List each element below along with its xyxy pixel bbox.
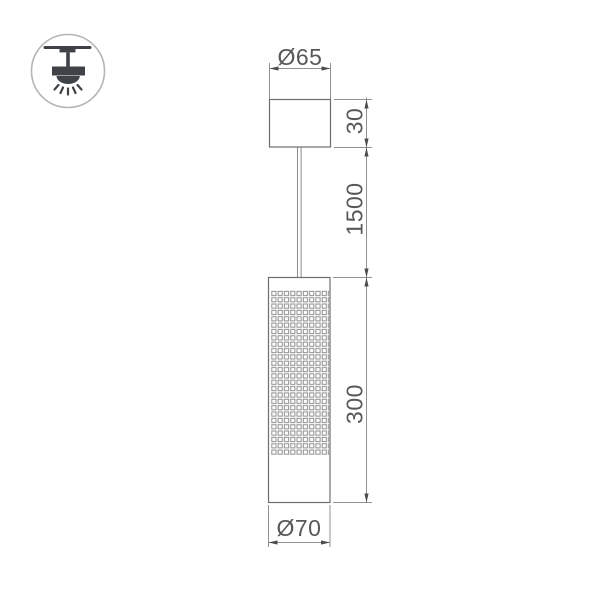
canopy-diameter-label: Ø65 (278, 44, 323, 70)
perforated-mesh (271, 291, 329, 456)
body-diameter-label: Ø70 (277, 515, 322, 541)
canopy-outline (270, 100, 331, 148)
canopy-height-label: 30 (342, 108, 368, 135)
dimension-drawing: Ø65 30 1500 300 Ø70 (0, 0, 600, 600)
product-dimension-sheet: Ø65 30 1500 300 Ø70 (0, 0, 600, 600)
body-height-label: 300 (342, 384, 368, 424)
suspension-length-label: 1500 (342, 182, 368, 235)
suspension-cable (298, 146, 302, 278)
